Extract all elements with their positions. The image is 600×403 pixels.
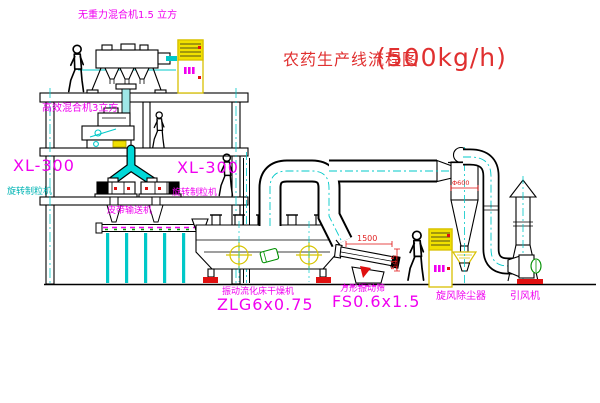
cyclone-label: 旋风除尘器 xyxy=(436,292,486,302)
induced-draft-fan-machine xyxy=(508,255,543,284)
cyclone-separator-machine xyxy=(448,147,481,283)
belt-conveyor-label: 皮带输送机 xyxy=(107,207,152,216)
belt-conveyor-machine xyxy=(96,223,202,283)
indicator-lights-icon xyxy=(434,265,445,272)
indicator-lights-icon xyxy=(184,67,195,74)
sieve-length-dimension: 1500 xyxy=(357,235,377,243)
granulator-center-model-label: XL-300 xyxy=(177,160,239,176)
granulator-left-machine xyxy=(95,178,137,197)
sieve-model-label: FS0.6x1.5 xyxy=(332,294,420,310)
granulator-left-model-label: XL-300 xyxy=(13,158,75,174)
worker-icon xyxy=(408,231,424,280)
control-cabinet-right xyxy=(429,229,452,287)
worker-icon xyxy=(153,112,164,148)
high-efficiency-mixer-label: 高效混合机3立方 xyxy=(42,104,118,114)
granulator-center-name-label: 旋转制粒机 xyxy=(172,189,217,198)
diagram-capacity: (500kg/h) xyxy=(376,45,507,70)
dryer-model-label: ZLG6x0.75 xyxy=(217,297,314,313)
control-cabinet-top xyxy=(178,40,203,93)
granulator-left-name-label: 旋转制粒机 xyxy=(7,188,52,197)
flow-diagram-canvas: 无重力混合机1.5 立方 农药生产线流程图 (500kg/h) 高效混合机3立方… xyxy=(0,0,600,403)
gravity-mixer-label: 无重力混合机1.5 立方 xyxy=(78,11,177,21)
sieve-height-dimension: 545 xyxy=(391,255,399,270)
worker-icon xyxy=(69,45,84,91)
cyclone-diameter-dimension: Φ600 xyxy=(452,180,470,187)
fan-label: 引风机 xyxy=(510,292,540,302)
